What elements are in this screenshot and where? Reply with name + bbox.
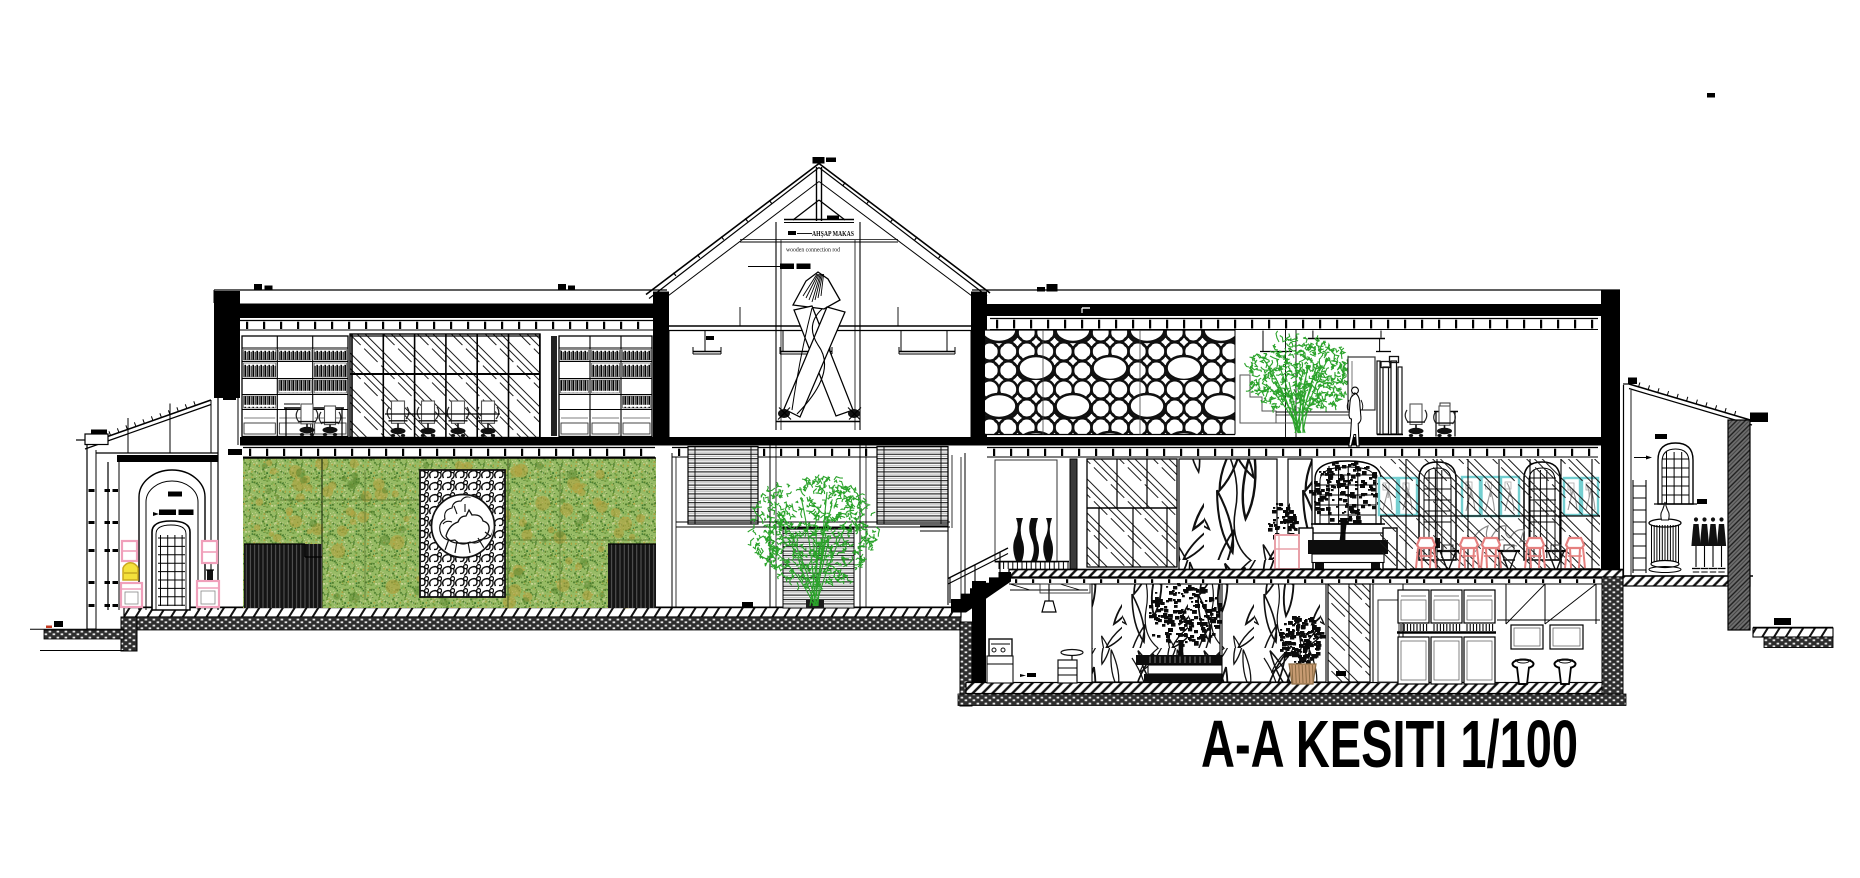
svg-text:wooden connection rod: wooden connection rod	[786, 247, 841, 254]
svg-text:AHŞAP MAKAS: AHŞAP MAKAS	[812, 230, 854, 238]
svg-text:A-A KESITI 1/100: A-A KESITI 1/100	[1201, 707, 1578, 782]
